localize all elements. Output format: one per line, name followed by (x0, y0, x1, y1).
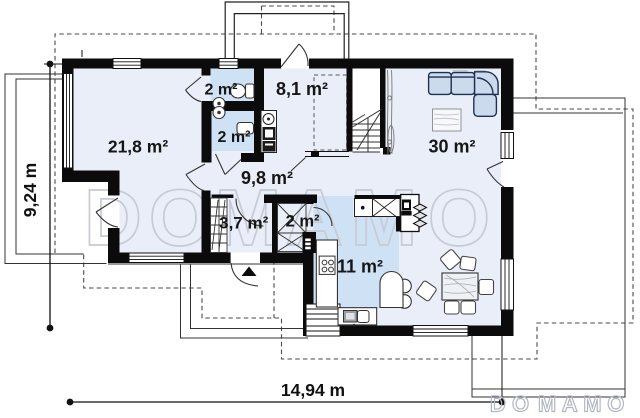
svg-text:M: M (538, 392, 556, 417)
svg-text:O: O (512, 392, 529, 417)
svg-text:O: O (607, 392, 624, 417)
svg-text:14,94 m: 14,94 m (281, 380, 345, 400)
svg-text:30 m²: 30 m² (428, 137, 475, 157)
svg-text:M: M (583, 392, 601, 417)
svg-text:2 m²: 2 m² (286, 213, 320, 231)
svg-text:O: O (428, 173, 490, 262)
svg-text:A: A (562, 392, 578, 417)
svg-text:2 m²: 2 m² (218, 129, 251, 146)
svg-text:9,8 m²: 9,8 m² (241, 168, 293, 188)
svg-text:21,8 m²: 21,8 m² (108, 137, 168, 157)
svg-text:3,7 m²: 3,7 m² (219, 214, 268, 233)
svg-text:D: D (490, 392, 506, 417)
svg-text:9,24 m: 9,24 m (20, 163, 40, 217)
svg-text:8,1 m²: 8,1 m² (276, 79, 328, 99)
svg-text:2 m²: 2 m² (205, 82, 238, 99)
svg-text:11 m²: 11 m² (337, 257, 383, 277)
